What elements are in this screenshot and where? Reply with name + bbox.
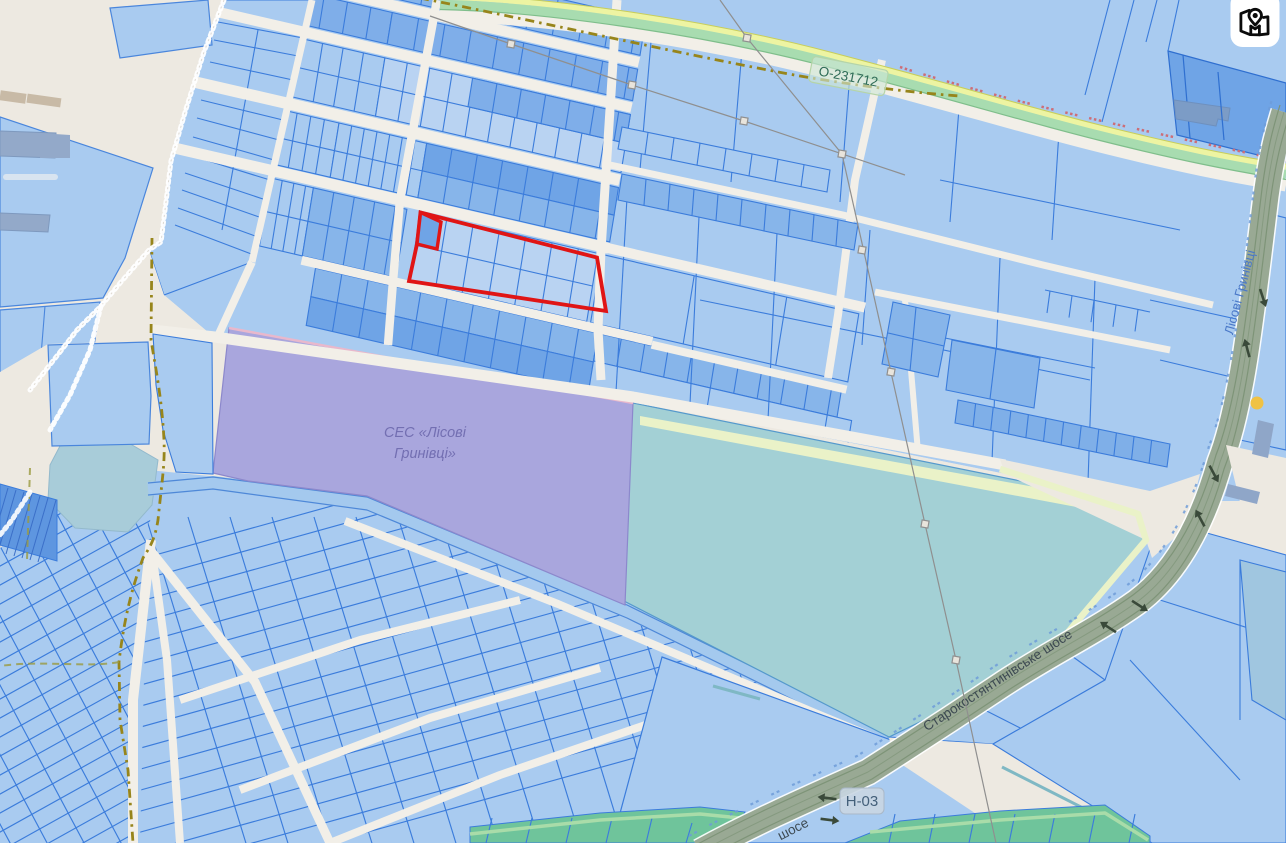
svg-text:Н-03: Н-03	[846, 793, 879, 810]
svg-text:Гринівці»: Гринівці»	[394, 446, 456, 462]
svg-text:СЕС «Лісові: СЕС «Лісові	[384, 425, 467, 441]
